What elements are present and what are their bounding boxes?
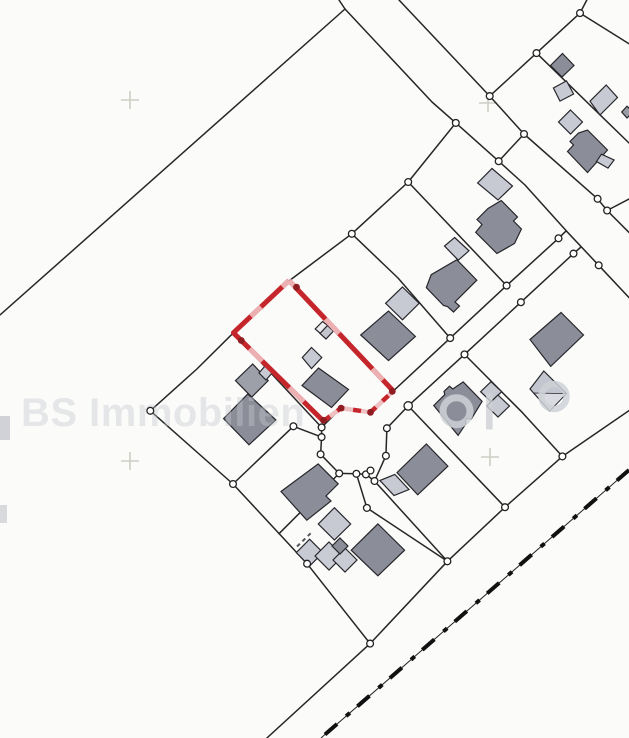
svg-text:BS Immobilien: BS Immobilien xyxy=(21,391,305,435)
